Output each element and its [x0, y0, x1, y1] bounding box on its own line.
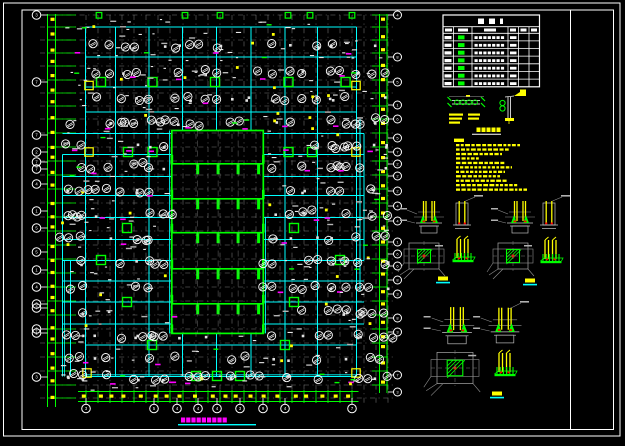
svg-text:5: 5 [35, 226, 38, 231]
svg-text:1: 1 [35, 268, 38, 273]
svg-text:5: 5 [396, 136, 399, 141]
svg-text:3: 3 [85, 406, 88, 411]
svg-text:6: 6 [396, 117, 399, 122]
svg-text:2: 2 [396, 174, 399, 179]
svg-text:5: 5 [35, 250, 38, 255]
svg-text:6: 6 [396, 252, 399, 257]
svg-text:3: 3 [396, 292, 399, 297]
svg-text:3: 3 [35, 13, 38, 18]
svg-text:2: 2 [396, 162, 399, 167]
svg-text:9: 9 [262, 406, 265, 411]
svg-text:4: 4 [176, 406, 179, 411]
svg-text:2: 2 [396, 189, 399, 194]
svg-text:6: 6 [396, 264, 399, 269]
svg-text:4: 4 [396, 204, 399, 209]
svg-text:3: 3 [35, 375, 38, 380]
svg-text:8: 8 [396, 55, 399, 60]
svg-text:8: 8 [396, 278, 399, 283]
svg-text:8: 8 [396, 316, 399, 321]
svg-text:4: 4 [197, 406, 200, 411]
svg-text:3: 3 [396, 330, 399, 335]
svg-text:7: 7 [35, 133, 38, 138]
svg-text:4: 4 [396, 219, 399, 224]
svg-text:4: 4 [35, 285, 38, 290]
svg-text:7: 7 [396, 373, 399, 378]
svg-text:5: 5 [153, 406, 156, 411]
svg-text:1: 1 [396, 240, 399, 245]
svg-text:7: 7 [35, 160, 38, 165]
svg-text:4: 4 [396, 13, 399, 18]
svg-text:3: 3 [239, 406, 242, 411]
svg-text:7: 7 [396, 150, 399, 155]
svg-text:4: 4 [284, 406, 287, 411]
svg-text:7: 7 [351, 406, 354, 411]
svg-text:5: 5 [396, 80, 399, 85]
svg-text:7: 7 [35, 167, 38, 172]
svg-text:1: 1 [35, 209, 38, 214]
svg-text:7: 7 [35, 80, 38, 85]
svg-text:3: 3 [396, 390, 399, 395]
svg-text:2: 2 [35, 150, 38, 155]
svg-text:4: 4 [216, 406, 219, 411]
svg-text:1: 1 [396, 103, 399, 108]
svg-text:4: 4 [35, 182, 38, 187]
